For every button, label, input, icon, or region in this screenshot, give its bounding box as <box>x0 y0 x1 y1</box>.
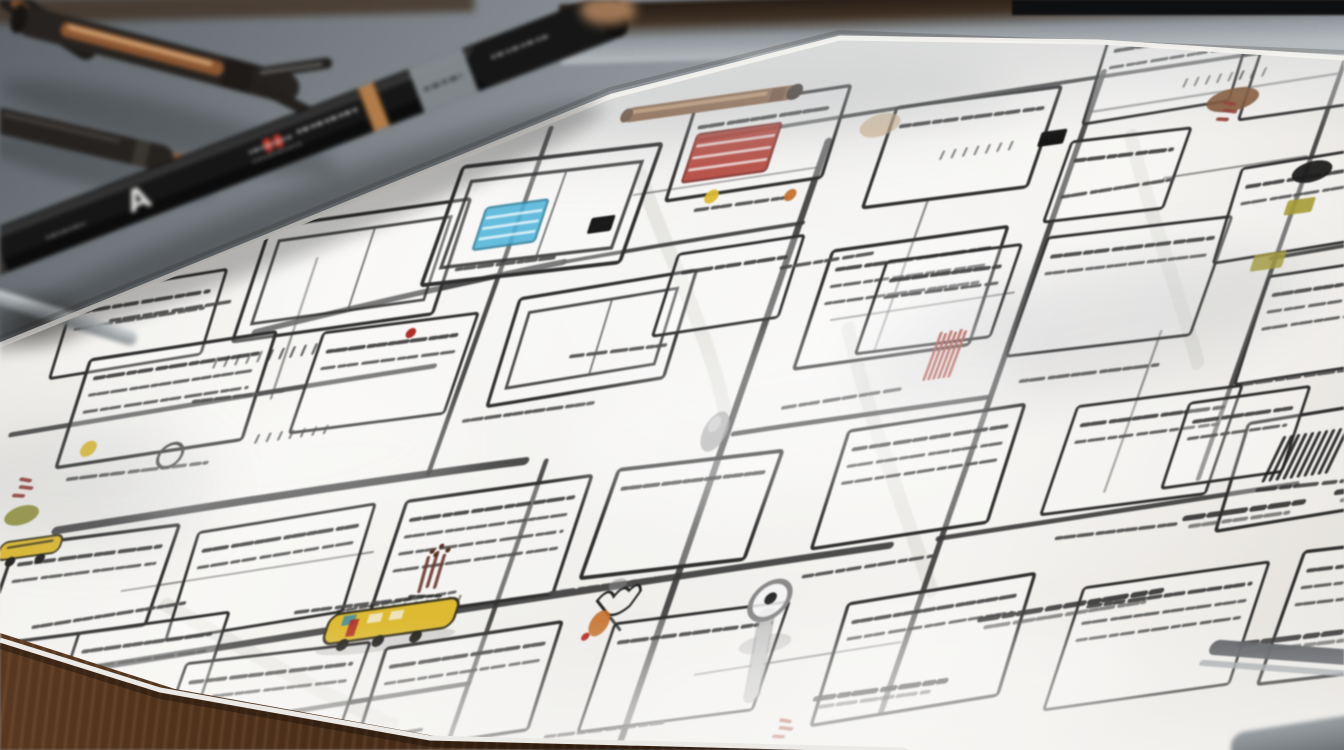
photo-scene: A <box>0 0 1344 750</box>
handwriting <box>804 556 935 577</box>
tick-mark <box>291 347 295 356</box>
handwriting <box>464 403 594 421</box>
handwriting <box>1057 524 1176 538</box>
text-scribble <box>464 403 594 421</box>
background-dark-bar <box>1012 0 1344 15</box>
tick-mark <box>302 346 306 355</box>
wireframe-box <box>1044 128 1191 222</box>
tick-mark <box>280 349 284 358</box>
building-block <box>1044 128 1191 222</box>
text-scribble <box>804 556 935 577</box>
color-dot <box>782 188 798 202</box>
text-scribble <box>1057 524 1176 538</box>
